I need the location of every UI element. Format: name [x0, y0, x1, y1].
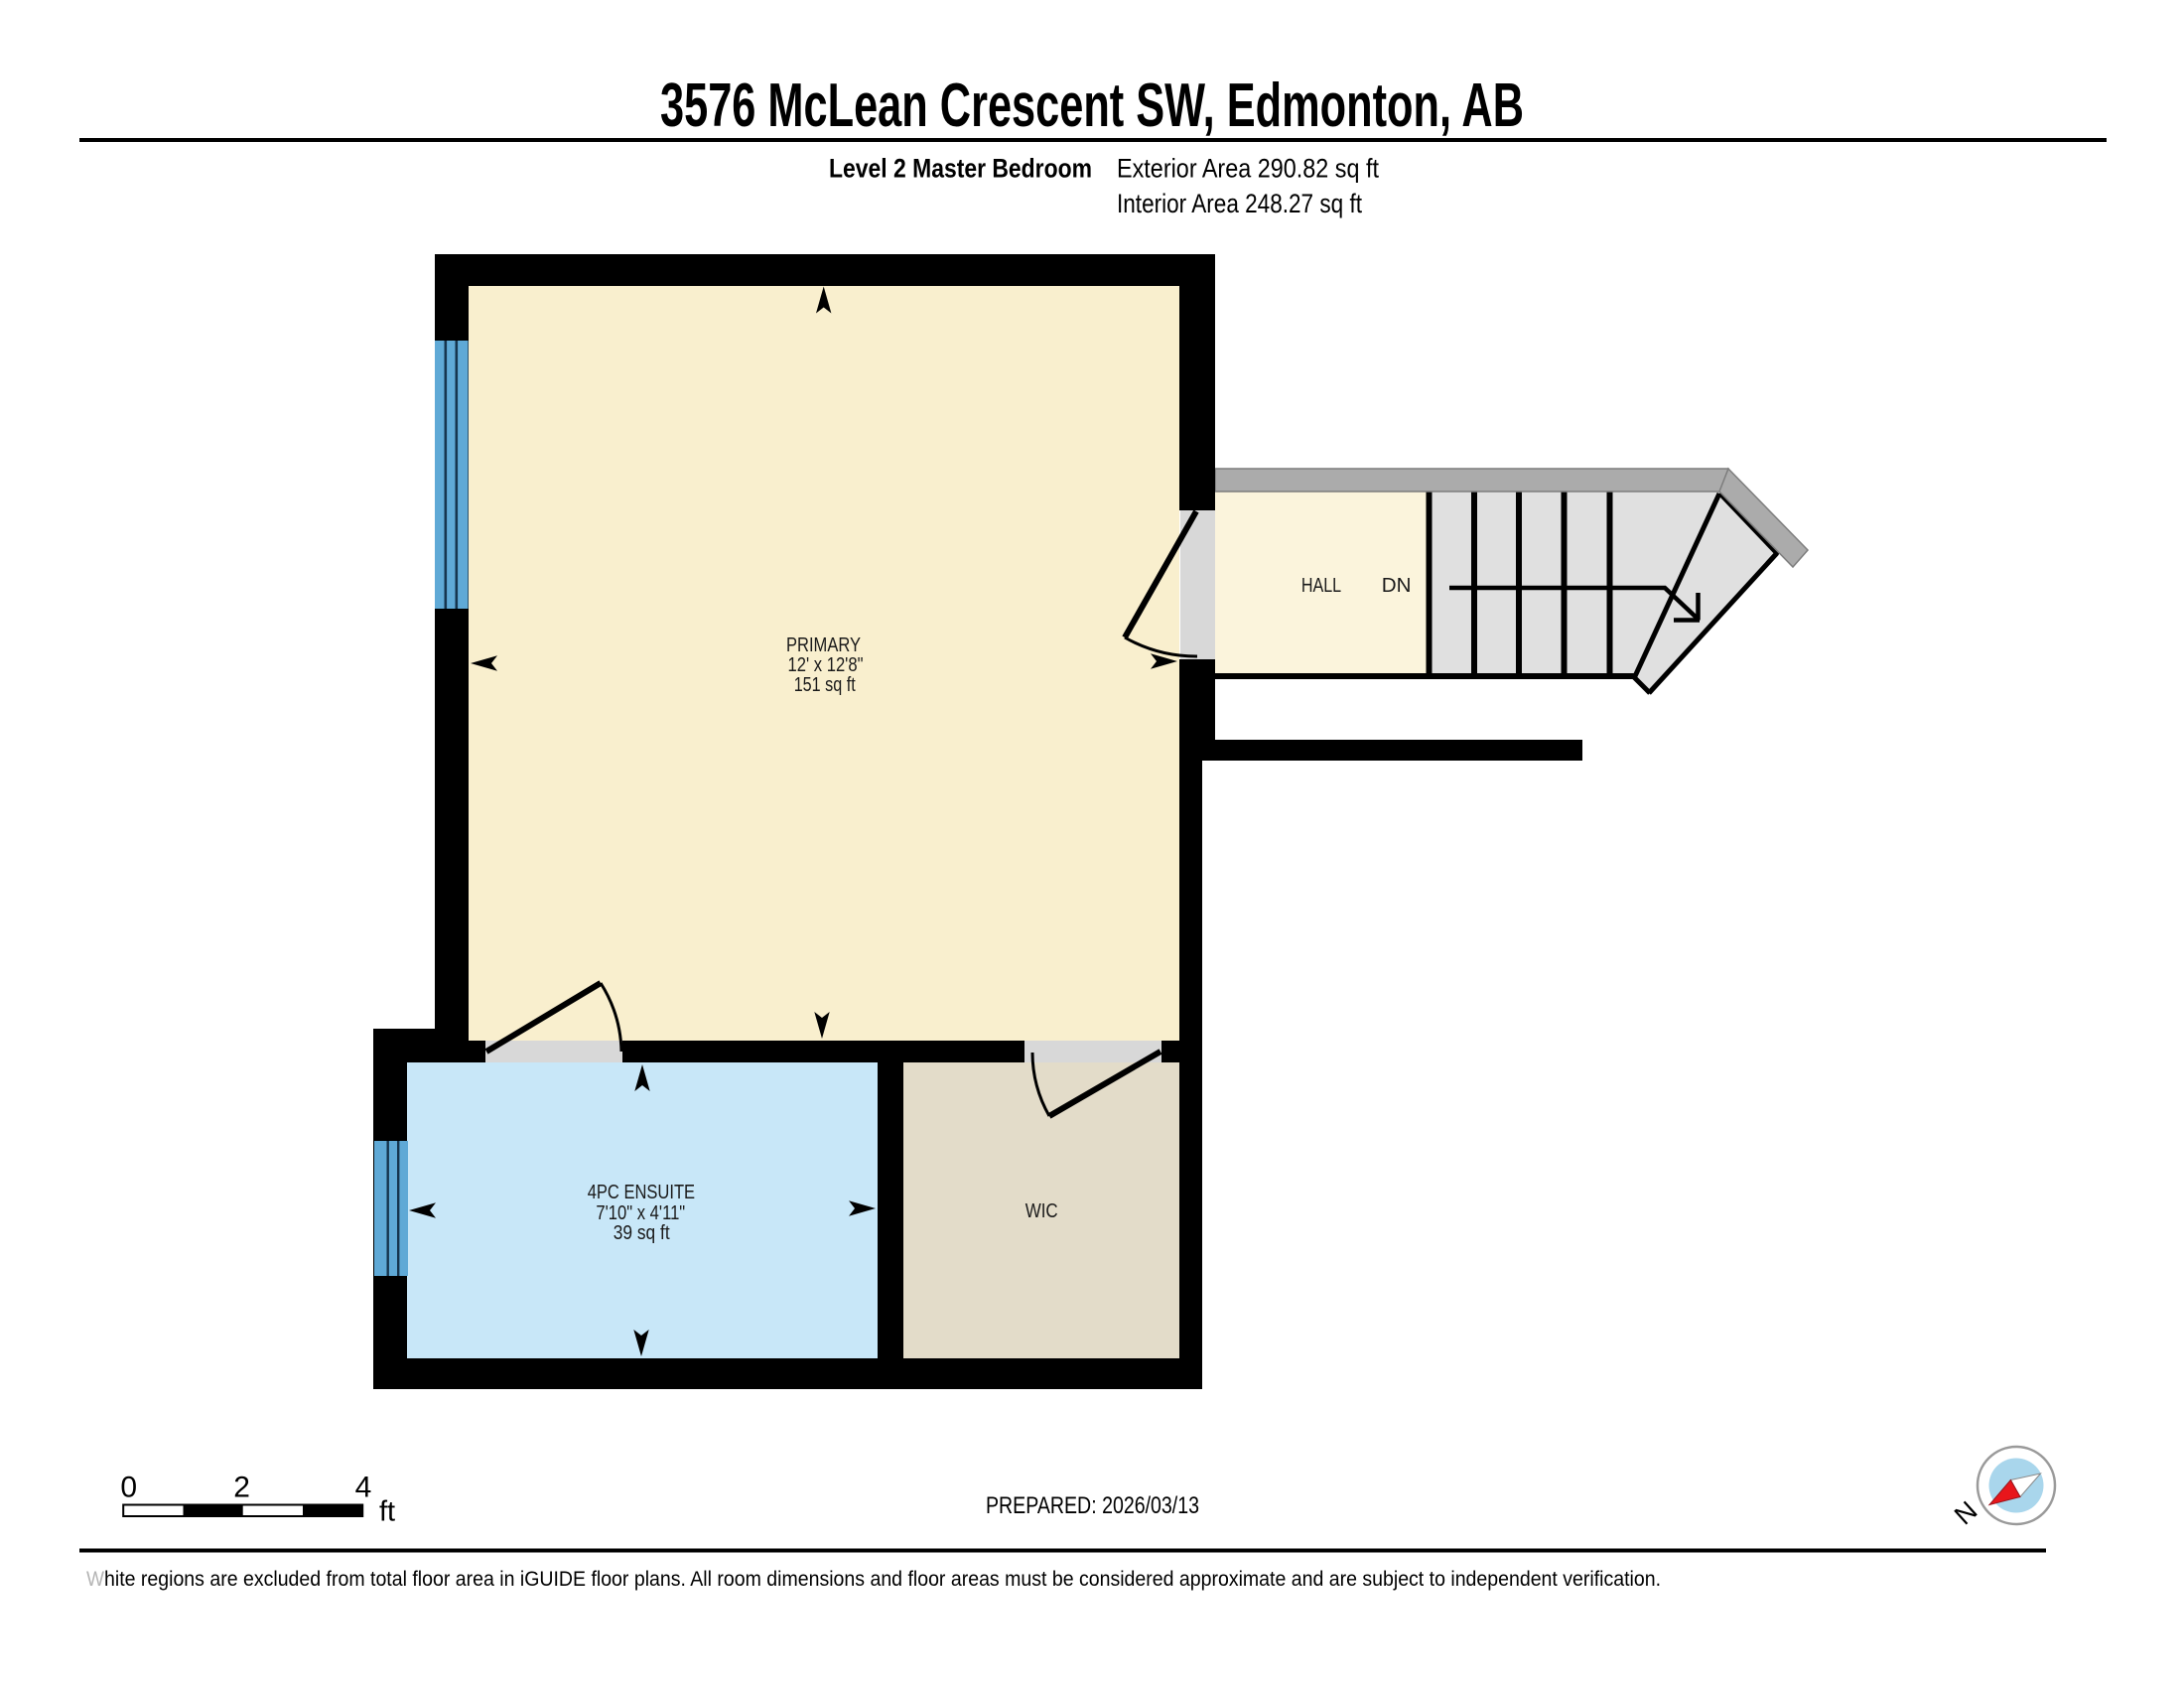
svg-text:HALL: HALL — [1301, 575, 1341, 597]
svg-text:39 sq ft: 39 sq ft — [614, 1222, 670, 1244]
svg-text:hite regions are excluded from: hite regions are excluded from total flo… — [104, 1567, 1661, 1591]
svg-text:2: 2 — [233, 1472, 250, 1504]
svg-text:151 sq ft: 151 sq ft — [794, 674, 856, 696]
svg-text:Interior Area 248.27 sq ft: Interior Area 248.27 sq ft — [1117, 189, 1363, 218]
svg-text:4: 4 — [355, 1472, 372, 1504]
svg-text:7'10" x 4'11": 7'10" x 4'11" — [596, 1202, 685, 1224]
svg-text:PREPARED: 2026/03/13: PREPARED: 2026/03/13 — [986, 1492, 1199, 1519]
svg-text:Level 2 Master Bedroom: Level 2 Master Bedroom — [829, 154, 1092, 184]
svg-text:0: 0 — [120, 1472, 137, 1504]
svg-text:PRIMARY: PRIMARY — [786, 634, 861, 656]
svg-text:ft: ft — [379, 1496, 395, 1528]
svg-text:4PC ENSUITE: 4PC ENSUITE — [588, 1182, 695, 1203]
svg-text:Exterior Area 290.82 sq ft: Exterior Area 290.82 sq ft — [1117, 154, 1380, 184]
svg-text:DN: DN — [1382, 575, 1412, 597]
svg-text:12' x 12'8": 12' x 12'8" — [788, 654, 864, 676]
svg-text:3576 McLean Crescent SW, Edmon: 3576 McLean Crescent SW, Edmonton, AB — [660, 71, 1524, 140]
svg-text:WIC: WIC — [1025, 1200, 1058, 1222]
svg-text:W: W — [86, 1567, 105, 1591]
